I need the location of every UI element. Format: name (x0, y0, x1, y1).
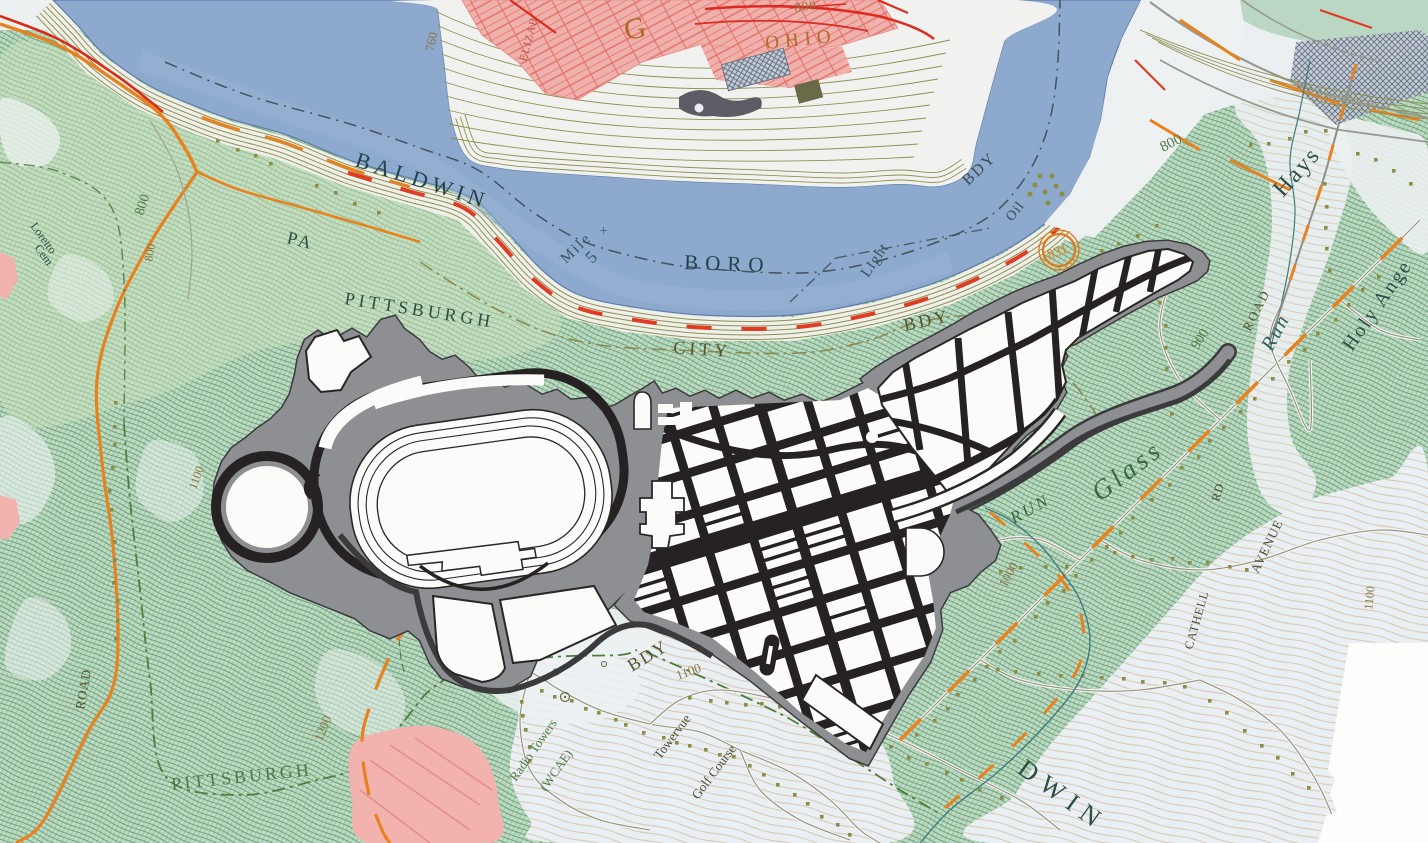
svg-text:BORO: BORO (684, 250, 771, 277)
svg-text:1100: 1100 (1361, 585, 1377, 610)
svg-text:CITY: CITY (673, 337, 732, 361)
